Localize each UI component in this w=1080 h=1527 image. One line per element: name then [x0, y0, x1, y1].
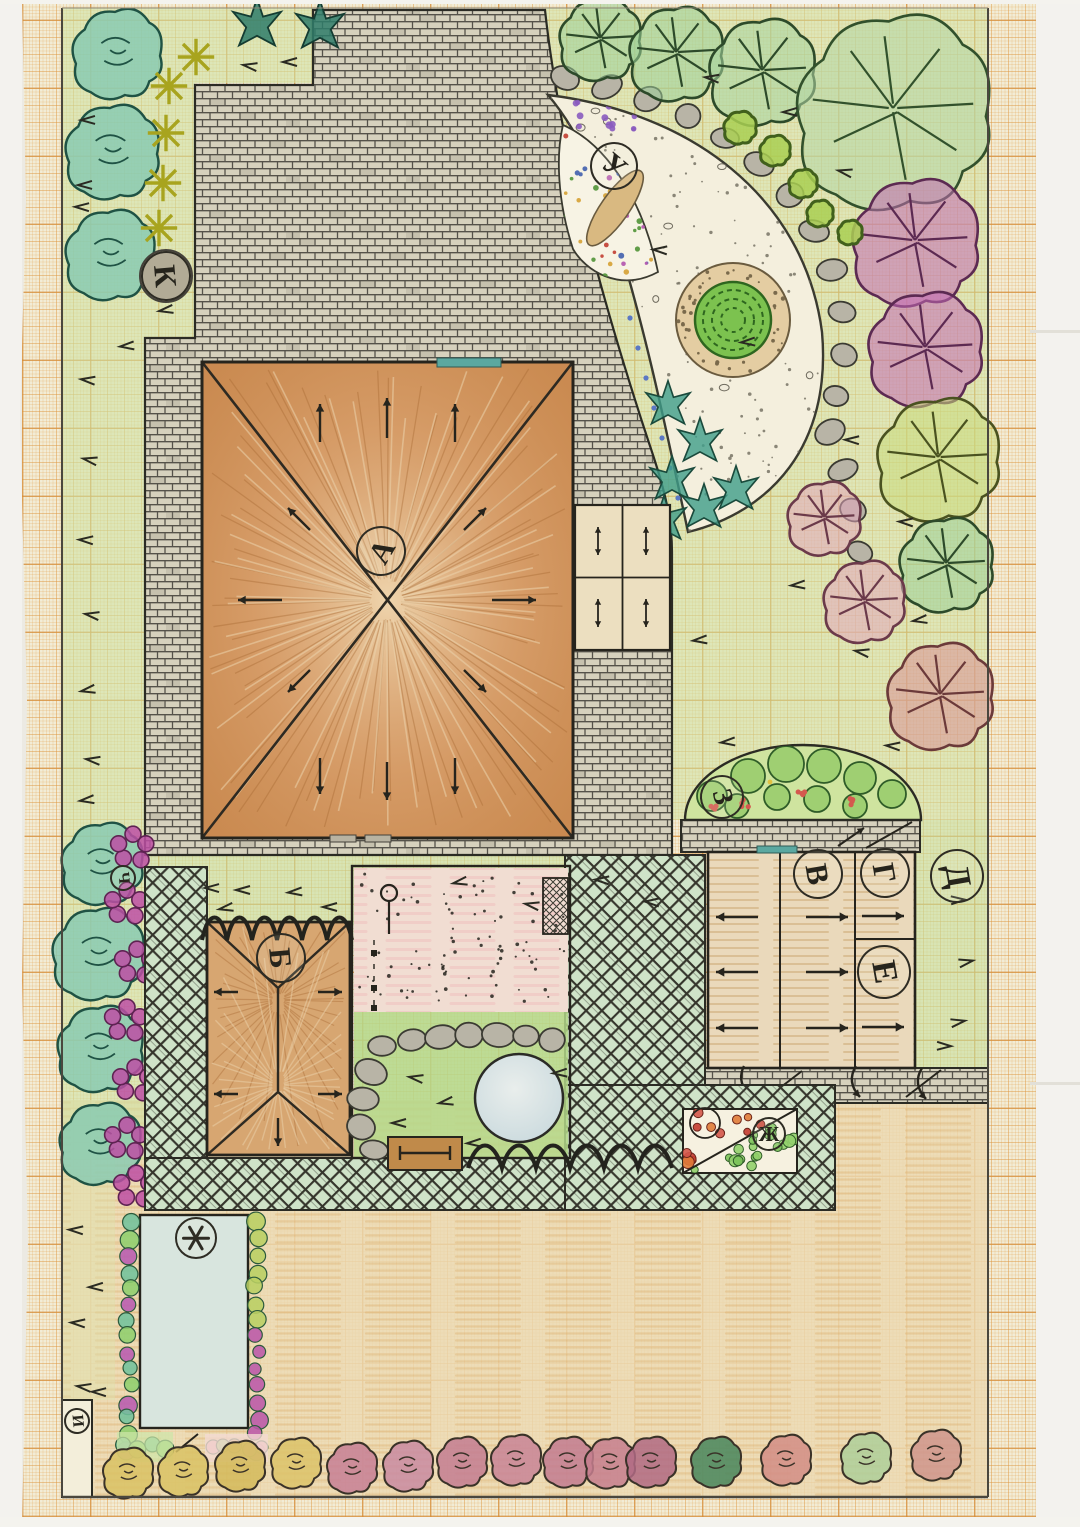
yellow-flower — [145, 165, 181, 201]
tree — [560, 0, 641, 81]
scanned-garden-plan: АБВГДЕЖЗИКУЧ — [0, 0, 1080, 1527]
grill-table — [543, 878, 568, 934]
lime-bush — [807, 200, 833, 227]
zone-label-* — [175, 1217, 217, 1259]
round-lettuce-bed — [676, 263, 790, 377]
garden-plan-drawing — [0, 0, 1080, 1527]
round-pond — [475, 1054, 563, 1142]
lime-bush — [789, 169, 817, 198]
zone-label-Ж: Ж — [752, 1117, 786, 1151]
lime-bush — [838, 220, 862, 245]
yellow-flower — [141, 210, 177, 246]
yellow-flower — [148, 115, 184, 151]
yellow-flower — [151, 68, 187, 104]
yellow-flower — [178, 39, 214, 75]
lime-bush — [724, 111, 756, 144]
side-deck — [575, 505, 670, 650]
house-roof-A — [202, 358, 573, 842]
window-teal — [437, 358, 501, 367]
lime-bush — [760, 135, 790, 166]
